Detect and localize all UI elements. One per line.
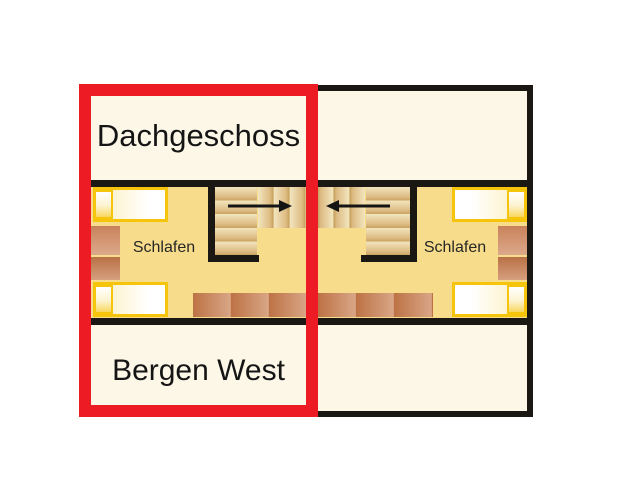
pillow bbox=[509, 192, 524, 217]
bed-right-top bbox=[452, 187, 527, 222]
arrow-left-icon bbox=[324, 198, 392, 214]
annotated-floorplan-image: Schlafen Schlafen Dachgeschoss Bergen We… bbox=[0, 0, 639, 504]
room-label-right-bedroom: Schlafen bbox=[405, 239, 505, 257]
mattress bbox=[455, 190, 507, 219]
bed-right-bottom bbox=[452, 282, 527, 317]
pillow bbox=[509, 287, 524, 312]
highlight-rectangle bbox=[79, 84, 318, 417]
corridor-railing-right bbox=[318, 293, 433, 317]
wardrobe-right-lower bbox=[498, 257, 527, 280]
mattress bbox=[455, 285, 507, 314]
